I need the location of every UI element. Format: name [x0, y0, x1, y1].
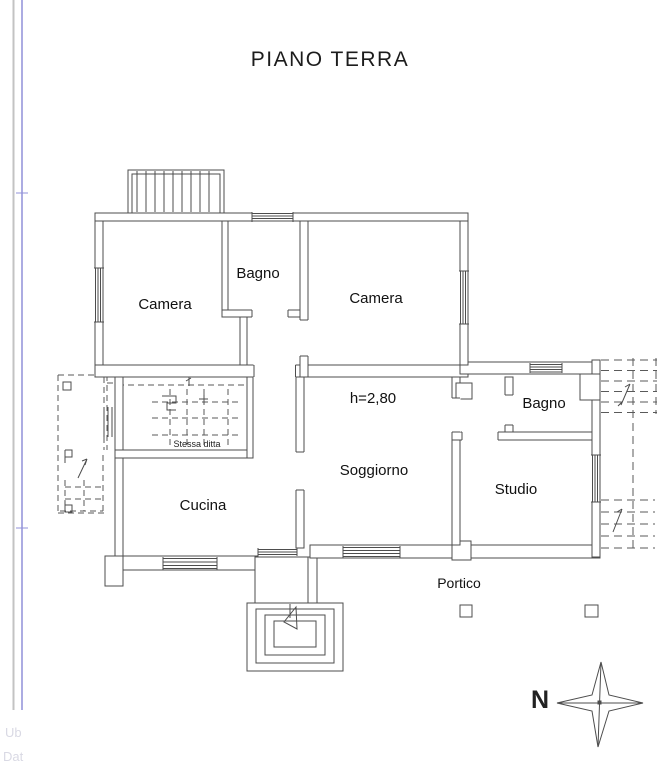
window-landing [258, 548, 297, 556]
top-staircase [128, 170, 224, 213]
room-label-soggiorno: Soggiorno [340, 462, 408, 479]
window-cucina-south [163, 557, 217, 570]
stair-direction-arrow [284, 604, 297, 629]
compass-center [598, 701, 602, 705]
stair-landing [255, 557, 308, 603]
ceiling-height-annotation: h=2,80 [350, 390, 396, 407]
faint-margin-text: Dat [3, 749, 24, 764]
room-label-cucina: Cucina [180, 497, 227, 514]
page-title: PIANO TERRA [251, 48, 409, 71]
window-bagno-top [252, 212, 293, 222]
annex-glyph [65, 501, 72, 512]
wall-cucina-north [115, 450, 253, 458]
annex-hatch [104, 407, 112, 437]
pillar-anteroom [456, 383, 472, 399]
room-label-bagno-top: Bagno [236, 265, 279, 282]
faint-margin-text: Ub [5, 725, 22, 740]
room-label-bagno-east: Bagno [522, 395, 565, 412]
wall-corridor-stub [247, 377, 253, 458]
pilaster-sw [105, 556, 123, 586]
compass-north-label: N [531, 686, 549, 714]
room-label-camera-nw: Camera [138, 296, 192, 313]
floor-plan-page: Ub Dat PIANO TERRA [0, 0, 660, 768]
wall-camera-bagno-divider [222, 221, 228, 317]
compass-rose: N [531, 662, 643, 747]
room-label-studio: Studio [495, 481, 538, 498]
window-studio-east [591, 455, 601, 502]
overlay-glyph [162, 396, 176, 410]
portico-column [585, 605, 598, 617]
annex-post-symbol [63, 382, 71, 390]
room-label-portico: Portico [437, 575, 481, 591]
overlay-glyph [186, 377, 208, 404]
portico-columns [460, 605, 598, 617]
annex-glyph [65, 450, 72, 463]
window-camera-ne-east [459, 271, 469, 324]
pillar-bagno-east [580, 374, 600, 400]
dashed-annex-left [58, 375, 118, 513]
floor-plan-canvas: Ub Dat PIANO TERRA [0, 0, 660, 768]
wall-hall-divider [240, 317, 247, 365]
portico-column [460, 605, 472, 617]
slope-arrow [618, 384, 630, 406]
room-label-camera-ne: Camera [349, 290, 403, 307]
annex-slope-arrow [78, 459, 87, 478]
window-bagno-east-north [530, 363, 562, 373]
bottom-staircase [247, 557, 343, 671]
window-soggiorno-south [343, 546, 400, 558]
page-margin-ruler: Ub Dat [3, 0, 28, 764]
stessa-ditta-note: Stessa ditta [173, 439, 220, 449]
window-camera-nw-west [94, 268, 104, 322]
wall-cucina-west [115, 377, 123, 556]
dashed-hatch-right-bottom [601, 500, 655, 548]
wall-landing [308, 557, 317, 603]
